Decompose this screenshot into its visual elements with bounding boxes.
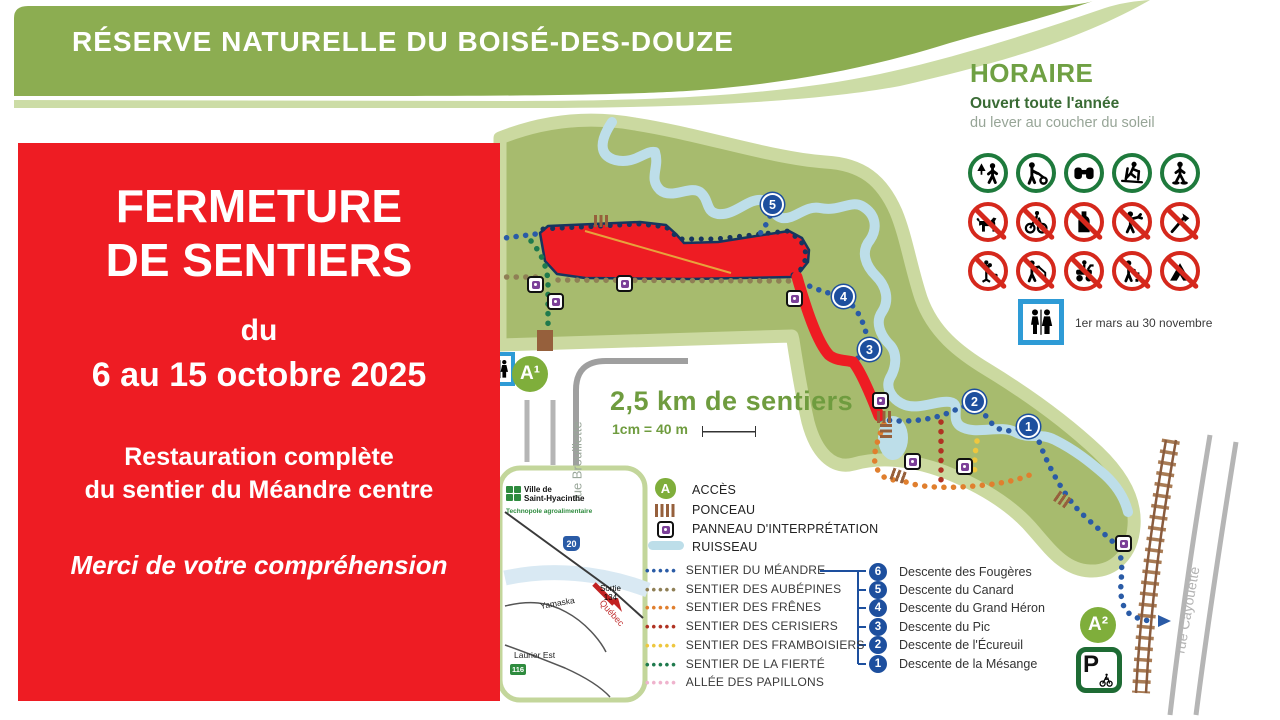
no-hunting-icon	[1112, 202, 1152, 242]
trail-dots-swatch: •••••	[645, 676, 678, 689]
horaire-hours: du lever au coucher du soleil	[970, 115, 1155, 131]
highway-20-shield: 20	[563, 536, 580, 551]
notice-line-du: du	[241, 314, 278, 348]
no-dogs-icon	[968, 202, 1008, 242]
descente-row: 6 Descente des Fougères	[869, 563, 1032, 581]
descente-number: 3	[869, 618, 887, 636]
no-wood-cutting-icon	[1160, 202, 1200, 242]
bike-parking-icon: P	[1076, 647, 1122, 693]
no-alcohol-icon	[1064, 202, 1104, 242]
closure-notice: FERMETURE DE SENTIERS du 6 au 15 octobre…	[18, 143, 500, 701]
page-title: RÉSERVE NATURELLE DU BOISÉ-DES-DOUZE	[72, 26, 734, 58]
trail-dots-swatch: •••••	[645, 601, 678, 614]
inset-street-label: Laurier Est	[514, 650, 555, 660]
trail-legend-row: ••••• SENTIER DE LA FIERTÉ	[645, 657, 825, 671]
trail-legend-row: ••••• SENTIER DES CERISIERS	[645, 619, 838, 633]
panneau-map-icon	[527, 276, 544, 293]
panneau-map-icon	[904, 453, 921, 470]
notice-thanks: Merci de votre compréhension	[70, 550, 447, 581]
panneau-map-icon	[956, 458, 973, 475]
descente-row: 4 Descente du Grand Héron	[869, 599, 1045, 617]
inset-city-tagline: Technopole agroalimentaire	[506, 508, 592, 515]
trail-dots-swatch: •••••	[645, 639, 678, 652]
descente-number: 2	[869, 636, 887, 654]
ponceau-map-icon	[880, 424, 892, 440]
descente-number: 1	[869, 655, 887, 673]
descente-row: 3 Descente du Pic	[869, 618, 990, 636]
map-marker-2: 2	[963, 390, 986, 413]
panneau-map-icon	[872, 392, 889, 409]
trail-dots-swatch: •••••	[645, 564, 678, 577]
panneau-map-icon	[1115, 535, 1132, 552]
notice-restoration: Restauration complète du sentier du Méan…	[85, 441, 434, 509]
notice-line-fermeture: FERMETURE	[116, 179, 402, 233]
no-camping-icon	[1160, 251, 1200, 291]
no-littering-icon	[1112, 251, 1152, 291]
descente-number: 6	[869, 563, 887, 581]
trail-legend-row: ••••• SENTIER DES AUBÉPINES	[645, 582, 841, 596]
street-label-brouillette: rue Brouillette	[570, 397, 585, 527]
allowed-activities-row	[968, 153, 1200, 193]
legend-ponceau-label: PONCEAU	[692, 503, 755, 517]
prohibited-row-1	[968, 202, 1200, 242]
descente-row: 1 Descente de la Mésange	[869, 655, 1037, 673]
horaire-title: HORAIRE	[970, 58, 1093, 89]
trail-dots-swatch: •••••	[645, 658, 678, 671]
trail-legend-row: ••••• SENTIER DES FRAMBOISIERS	[645, 638, 865, 652]
city-logo	[506, 486, 521, 501]
birdwatching-allowed-icon	[1064, 153, 1104, 193]
trail-legend-row: ••••• ALLÉE DES PAPILLONS	[645, 675, 824, 689]
descente-number: 4	[869, 599, 887, 617]
descente-number: 5	[869, 581, 887, 599]
panneau-legend-icon	[657, 521, 674, 538]
notice-dates: 6 au 15 octobre 2025	[92, 356, 427, 395]
panneau-map-icon	[616, 275, 633, 292]
cross-country-ski-allowed-icon	[1112, 153, 1152, 193]
railroad-rail-left	[1136, 440, 1166, 693]
trail-dots-swatch: •••••	[645, 583, 678, 596]
prohibited-row-2	[968, 251, 1200, 291]
access-1-marker: A¹	[512, 356, 548, 392]
no-motorized-vehicles-icon	[1064, 251, 1104, 291]
stroller-walk-allowed-icon	[1016, 153, 1056, 193]
notice-line-sentiers: DE SENTIERS	[106, 233, 413, 287]
ruisseau-legend-icon	[648, 541, 684, 550]
no-plant-picking-icon	[968, 251, 1008, 291]
no-cycling-icon	[1016, 202, 1056, 242]
map-marker-1: 1	[1017, 415, 1040, 438]
map-scale-label: 1cm = 40 m	[612, 421, 688, 437]
highway-116-shield: 116	[510, 664, 526, 675]
trail-dots-swatch: •••••	[645, 620, 678, 633]
descente-row: 5 Descente du Canard	[869, 581, 1014, 599]
no-fishing-icon	[1016, 251, 1056, 291]
hiking-allowed-icon	[968, 153, 1008, 193]
legend-acces-label: ACCÈS	[692, 483, 736, 497]
legend-ruisseau-label: RUISSEAU	[692, 540, 758, 554]
map-marker-4: 4	[832, 285, 855, 308]
access-legend-icon: A	[655, 478, 676, 499]
access-2-marker: A²	[1080, 607, 1116, 643]
panneau-map-icon	[786, 290, 803, 307]
horaire-subtitle: Ouvert toute l'année	[970, 95, 1119, 113]
panneau-map-icon	[547, 293, 564, 310]
trail-legend-row: ••••• SENTIER DU MÉANDRE	[645, 563, 825, 577]
descente-row: 2 Descente de l'Écureuil	[869, 636, 1023, 654]
snowshoe-allowed-icon	[1160, 153, 1200, 193]
inset-city-name: Ville de Saint-Hyacinthe	[524, 486, 584, 504]
restroom-icon	[1018, 299, 1064, 345]
map-marker-3: 3	[858, 338, 881, 361]
legend-panneau-label: PANNEAU D'INTERPRÉTATION	[692, 522, 878, 536]
ponceau-map-icon	[537, 330, 553, 351]
ponceau-map-icon	[877, 411, 893, 423]
trail-arrow	[1158, 615, 1171, 627]
map-marker-5: 5	[761, 193, 784, 216]
map-scale-bar	[702, 426, 756, 437]
ponceau-map-icon	[594, 215, 610, 227]
restroom-season-note: 1er mars au 30 novembre	[1075, 316, 1212, 330]
trail-legend-row: ••••• SENTIER DES FRÊNES	[645, 600, 821, 614]
bike-icon	[1096, 673, 1116, 687]
ponceau-legend-icon	[655, 504, 677, 517]
trail-length-label: 2,5 km de sentiers	[610, 386, 853, 417]
